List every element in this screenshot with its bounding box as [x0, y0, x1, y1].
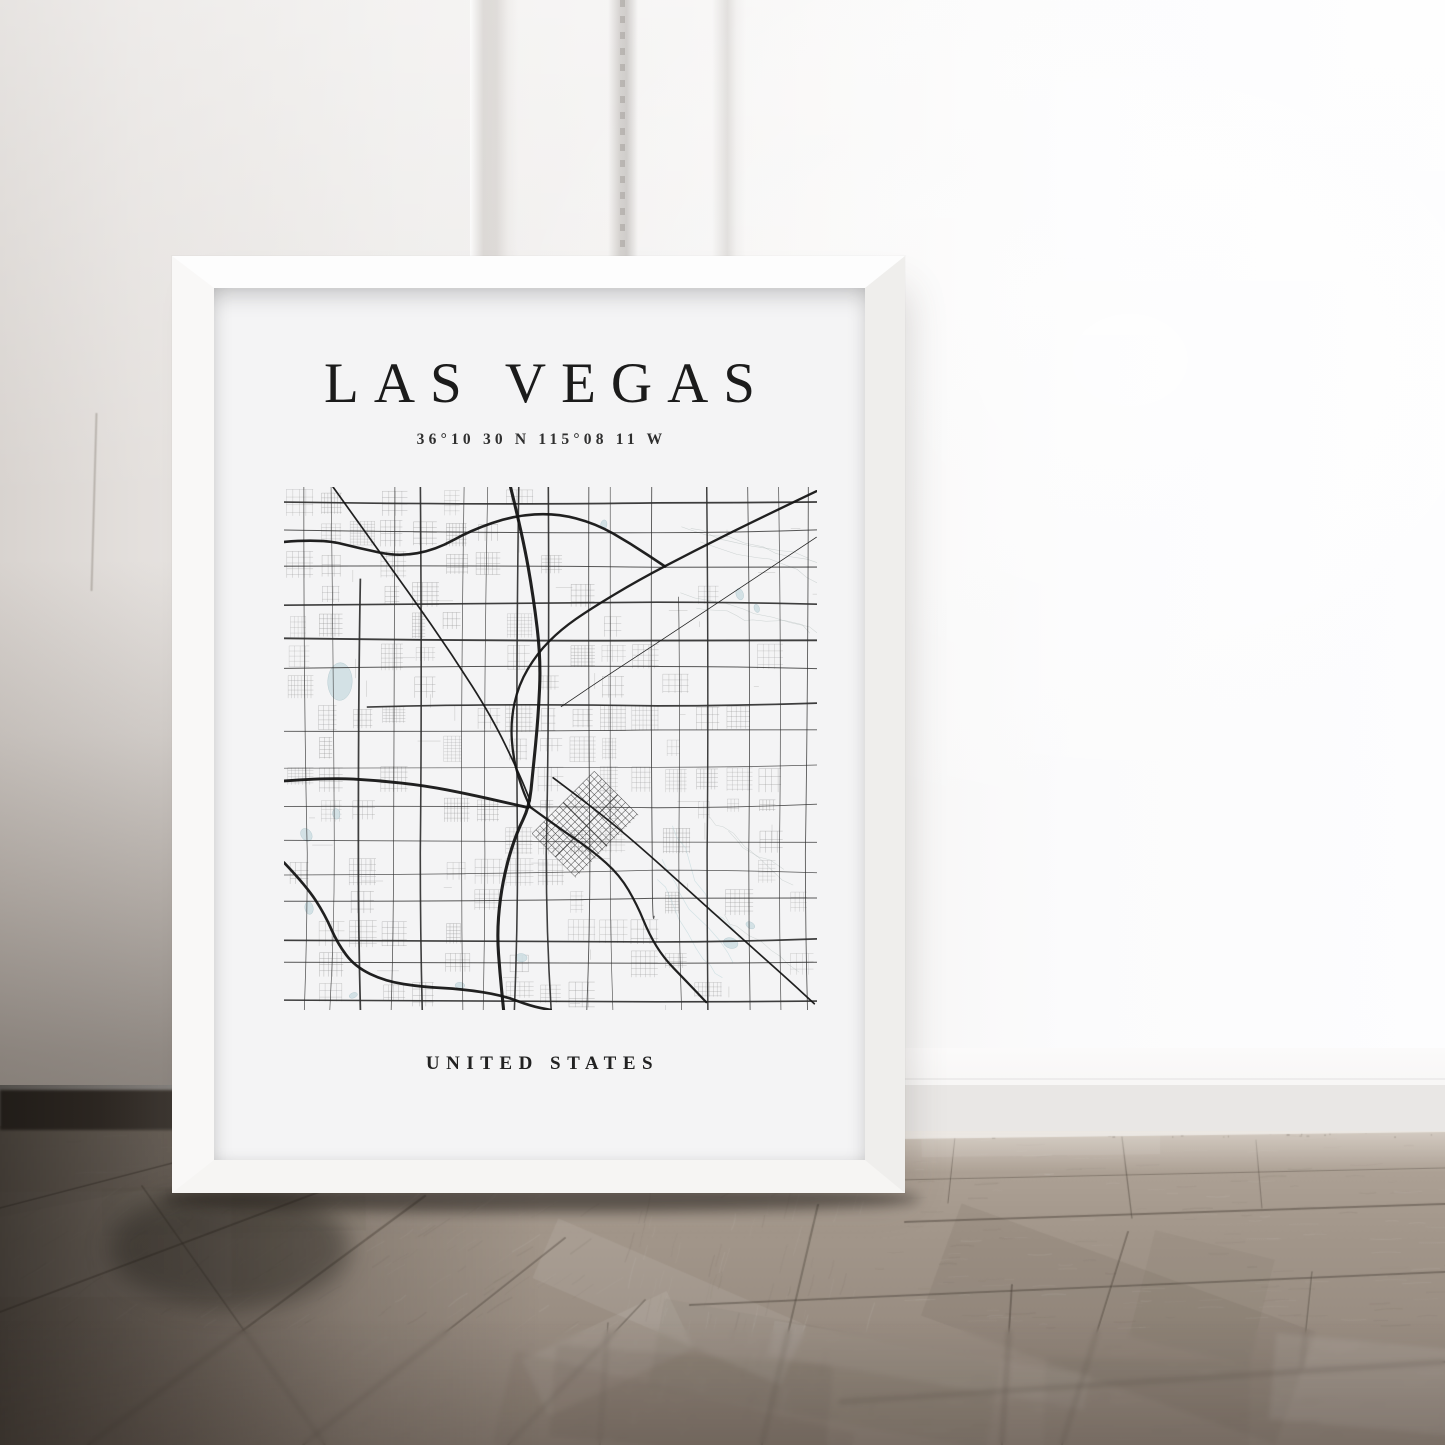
floor-wall-haze — [893, 1131, 1445, 1173]
wall-molding-strip-right — [712, 0, 746, 268]
poster-coordinates: 36°10 30 N 115°08 11 W — [214, 431, 865, 449]
picture-frame: LAS VEGAS 36°10 30 N 115°08 11 W UNITED … — [172, 256, 905, 1193]
map-poster: LAS VEGAS 36°10 30 N 115°08 11 W UNITED … — [214, 288, 865, 1160]
wall-molding-strip-left — [470, 0, 518, 268]
poster-title: LAS VEGAS — [214, 351, 865, 416]
city-street-map — [284, 487, 817, 1010]
floor-vignette — [0, 1320, 1445, 1445]
wall-shadow-left — [0, 560, 188, 1140]
poster-country: UNITED STATES — [214, 1053, 865, 1075]
wall-molding-strip-center — [608, 0, 638, 268]
photo-framed-city-map-poster: LAS VEGAS 36°10 30 N 115°08 11 W UNITED … — [0, 0, 1445, 1445]
